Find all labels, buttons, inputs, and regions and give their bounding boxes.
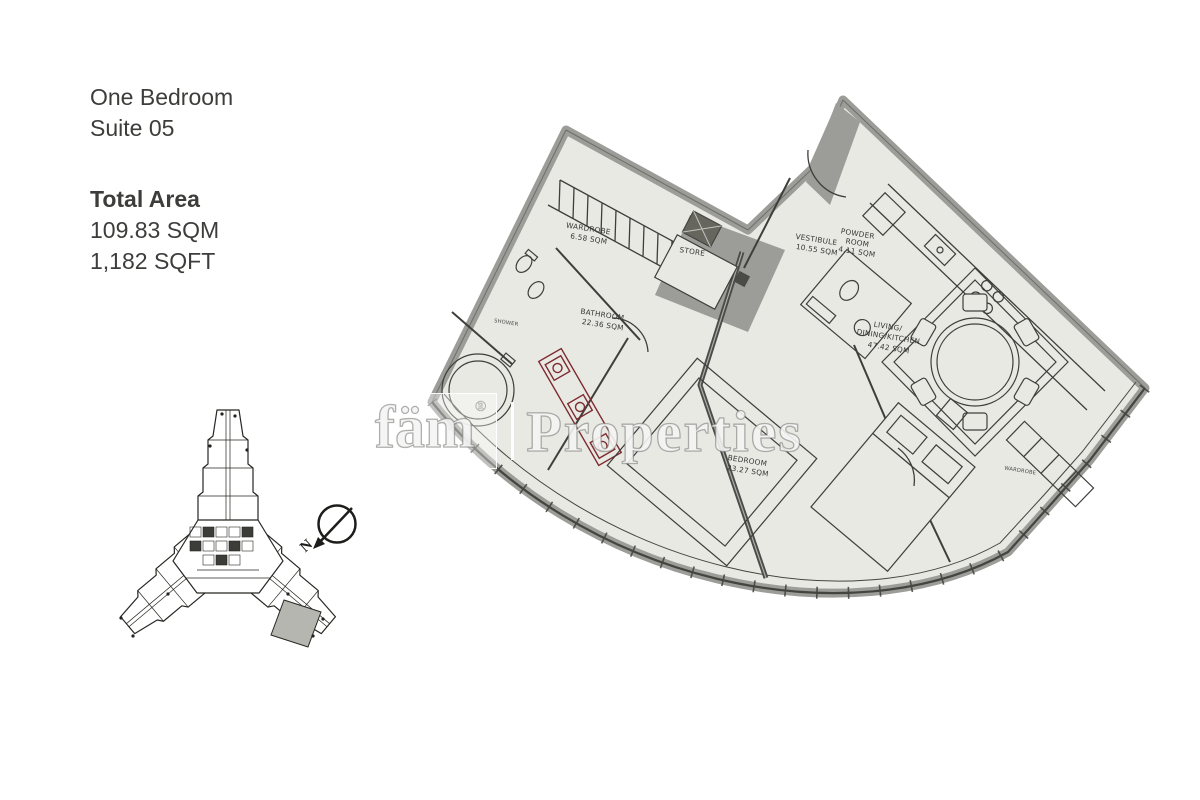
- watermark-brand-box: fäm ®: [362, 393, 497, 469]
- keyplan-core: [173, 520, 283, 593]
- keyplan: [108, 410, 347, 648]
- svg-text:N: N: [297, 537, 316, 556]
- watermark-brand: fäm: [375, 394, 475, 460]
- registered-mark-icon: ®: [475, 399, 486, 416]
- watermark-divider: [511, 402, 514, 460]
- north-arrow-icon: N: [297, 506, 355, 556]
- floorplan-page: One Bedroom Suite 05 Total Area 109.83 S…: [0, 0, 1200, 800]
- watermark-name: Properties: [526, 398, 803, 465]
- watermark: fäm ® Properties: [362, 392, 803, 470]
- keyplan-wing-up: [198, 410, 258, 524]
